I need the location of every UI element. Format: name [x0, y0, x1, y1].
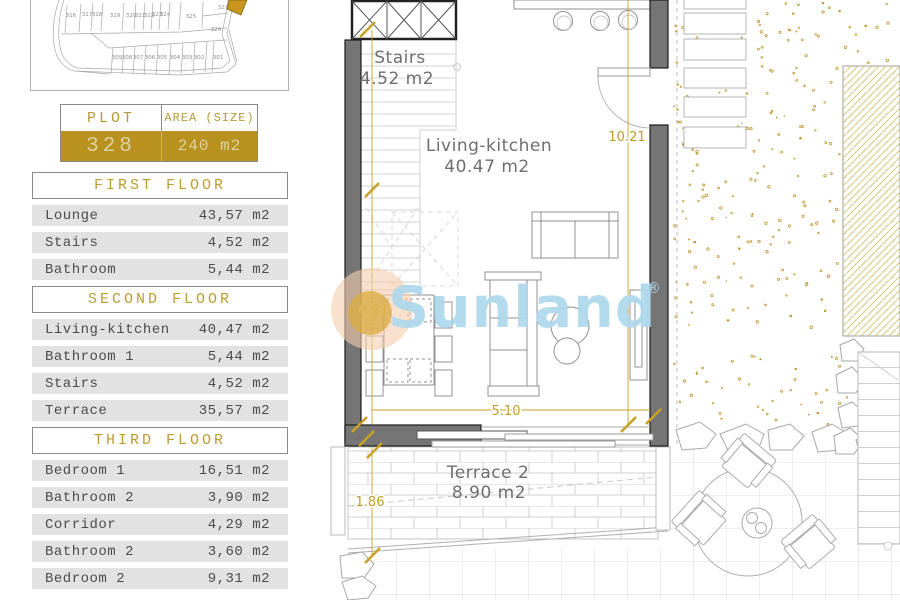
room-area-value: 35,57 m2 — [199, 403, 270, 419]
living-kitchen-area-label: 40.47 m2 — [444, 157, 529, 177]
room-label: Stairs — [45, 235, 98, 251]
room-area-value: 5,44 m2 — [208, 349, 270, 365]
room-label: Lounge — [45, 208, 98, 224]
terrace2-area-label: 8.90 m2 — [452, 483, 526, 503]
terrace-pillar-left — [331, 447, 345, 535]
sofa — [532, 212, 618, 258]
site-plan-inset: 3163173183193203213223233243253273263093… — [30, 0, 289, 91]
floor-row: Bedroom 116,51 m2 — [32, 460, 288, 481]
site-plot-number: 325 — [186, 14, 197, 20]
dim-10-21: 10.21 — [608, 130, 645, 145]
floor-row: Bathroom5,44 m2 — [32, 259, 288, 280]
watermark: Sunland ® — [331, 268, 661, 350]
outdoor-steps — [858, 352, 900, 550]
site-plot-number: 324 — [160, 12, 171, 18]
site-plot-number: 318 — [92, 12, 103, 18]
site-plan-drawing: 3163173183193203213223233243253273263093… — [31, 0, 286, 88]
site-plot-number: 326 — [211, 27, 222, 33]
room-label: Bathroom 2 — [45, 544, 134, 560]
site-plot-number: 306 — [145, 55, 156, 61]
sun-logo-inner — [348, 291, 392, 335]
kitchen-counter — [514, 0, 650, 31]
plot-info-table: PLOT AREA (SIZE) 328 240 m2 — [60, 104, 258, 162]
round-side-table-small — [554, 338, 580, 364]
tiles-left — [346, 548, 670, 600]
floor-section-title: FIRST FLOOR — [32, 172, 288, 199]
plot-area-cell: 240 m2 — [161, 131, 257, 161]
watermark-brand-text: Sunland — [388, 275, 657, 341]
site-plot-number: 305 — [157, 55, 168, 61]
site-plot-number: 301 — [213, 55, 224, 61]
site-plot-number: 304 — [170, 55, 181, 61]
floor-section-title: SECOND FLOOR — [32, 286, 288, 313]
room-area-value: 3,60 m2 — [208, 544, 270, 560]
site-plot-number: 319 — [110, 13, 121, 19]
floorplan-page: Stairs 4.52 m2 Living-kitchen 40.47 m2 T… — [0, 0, 900, 600]
site-plot-number: 316 — [66, 13, 77, 19]
wall-right-top — [650, 0, 668, 68]
highlighted-plot-328 — [227, 0, 247, 15]
room-label: Stairs — [45, 376, 98, 392]
floor-tables: FIRST FLOORLounge43,57 m2Stairs4,52 m2Ba… — [32, 172, 288, 595]
entrance-door — [598, 68, 650, 128]
floor-section-title: THIRD FLOOR — [32, 427, 288, 454]
floor-row: Stairs4,52 m2 — [32, 232, 288, 253]
room-area-value: 9,31 m2 — [208, 571, 270, 587]
floor-row: Living-kitchen40,47 m2 — [32, 319, 288, 340]
room-area-value: 5,44 m2 — [208, 262, 270, 278]
area-header-cell: AREA (SIZE) — [161, 105, 257, 131]
garden-planters — [684, 0, 746, 148]
site-plot-number: 302 — [194, 55, 205, 61]
pool-hatched-area — [843, 66, 900, 336]
registered-mark: ® — [646, 279, 661, 297]
room-label: Bathroom — [45, 262, 116, 278]
wall-left — [345, 40, 361, 442]
site-plot-number: 307 — [133, 55, 144, 61]
plot-number-cell: 328 — [61, 131, 161, 161]
room-area-value: 16,51 m2 — [199, 463, 270, 479]
site-plot-number: 308 — [122, 55, 133, 61]
floor-row: Stairs4,52 m2 — [32, 373, 288, 394]
floor-row: Terrace35,57 m2 — [32, 400, 288, 421]
plot-header-cell: PLOT — [61, 105, 161, 131]
room-label: Bedroom 1 — [45, 463, 125, 479]
floor-row: Bathroom 23,90 m2 — [32, 487, 288, 508]
stairs-area-label: 4.52 m2 — [360, 69, 434, 89]
site-plot-number: 327 — [218, 5, 229, 11]
room-label: Terrace — [45, 403, 107, 419]
plot-table-value-row: 328 240 m2 — [61, 131, 257, 161]
site-plot-number: 303 — [182, 55, 193, 61]
room-area-value: 4,52 m2 — [208, 376, 270, 392]
stairwell-hatch-box — [352, 1, 456, 39]
dim-5-10: 5.10 — [492, 404, 521, 419]
plot-table-header-row: PLOT AREA (SIZE) — [61, 105, 257, 131]
room-area-value: 40,47 m2 — [199, 322, 270, 338]
floor-row: Bathroom 15,44 m2 — [32, 346, 288, 367]
room-label: Corridor — [45, 517, 116, 533]
room-label: Bedroom 2 — [45, 571, 125, 587]
terrace2-label: Terrace 2 — [446, 463, 530, 483]
room-label: Living-kitchen — [45, 322, 170, 338]
room-label: Bathroom 1 — [45, 349, 134, 365]
room-area-value: 3,90 m2 — [208, 490, 270, 506]
room-label: Bathroom 2 — [45, 490, 134, 506]
stairs-label: Stairs — [374, 48, 425, 68]
room-area-value: 43,57 m2 — [199, 208, 270, 224]
floor-row: Bathroom 23,60 m2 — [32, 541, 288, 562]
living-kitchen-label: Living-kitchen — [426, 136, 552, 156]
terrace-pillar-right — [656, 447, 670, 530]
floor-row: Corridor4,29 m2 — [32, 514, 288, 535]
floor-row: Lounge43,57 m2 — [32, 205, 288, 226]
dim-1-86: 1.86 — [356, 495, 385, 510]
room-area-value: 4,29 m2 — [208, 517, 270, 533]
floor-row: Bedroom 29,31 m2 — [32, 568, 288, 589]
room-area-value: 4,52 m2 — [208, 235, 270, 251]
site-plan-numbers: 3163173183193203213223233243253273263093… — [66, 5, 229, 61]
